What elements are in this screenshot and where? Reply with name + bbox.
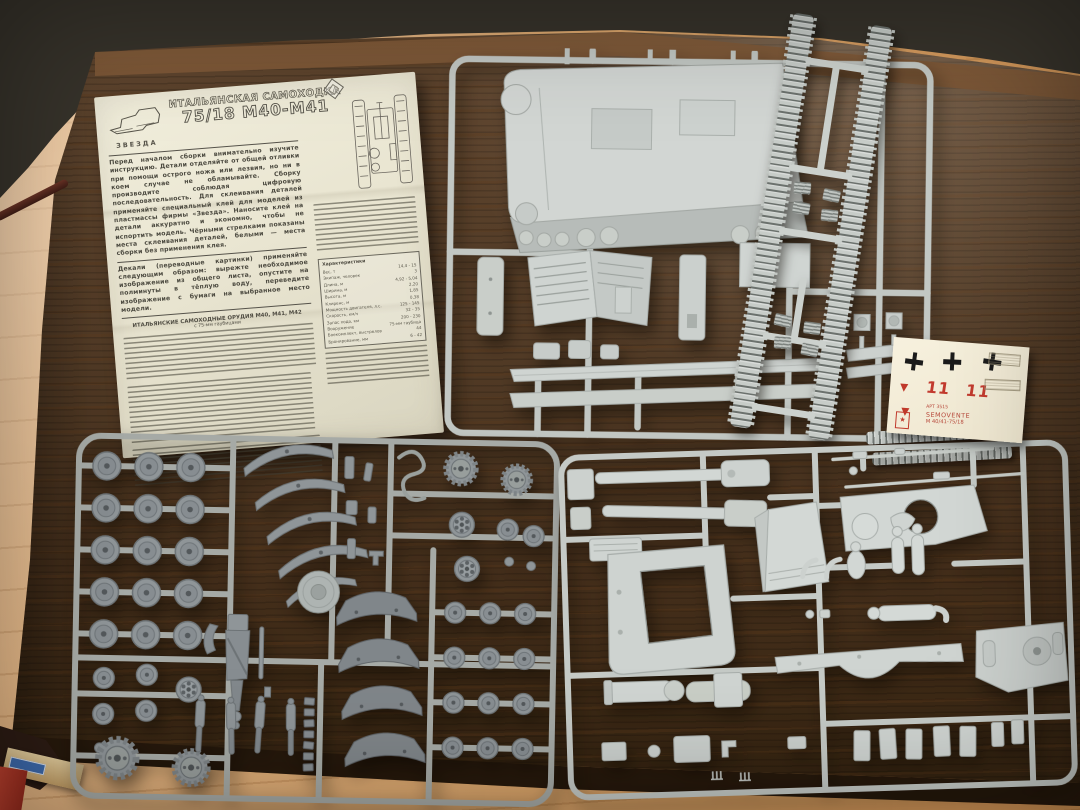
sprue-runner bbox=[816, 61, 841, 176]
decal-brand-logo: ★ bbox=[895, 411, 910, 429]
track-link-chain-parts bbox=[303, 697, 315, 771]
history-paragraph bbox=[313, 196, 419, 254]
instruction-sheet: ЗВЕЗДА ИТАЛЬЯНСКАЯ САМОХОДКА 75/18 М40-М… bbox=[94, 72, 444, 459]
decal-kit-model: M 40/41-75/18 bbox=[926, 419, 970, 427]
track-pad-part bbox=[820, 209, 838, 223]
track-pad-part bbox=[822, 188, 841, 203]
windshield-plate-part bbox=[754, 502, 829, 592]
zvezda-logo-art bbox=[105, 104, 165, 139]
printer-mark-box bbox=[984, 379, 1020, 392]
wheels-sprue bbox=[66, 425, 568, 810]
spec-table: Характеристики Вес, т14,4 - 15Экипаж, че… bbox=[318, 251, 427, 349]
gun-barrel-parts bbox=[567, 459, 772, 561]
vehicle-top-view-diagram bbox=[346, 92, 420, 195]
cross-marking-decal bbox=[904, 351, 924, 371]
rear-plate-assembly-part bbox=[974, 622, 1068, 693]
assembly-instructions-text: Перед началом сборки внимательно изучите… bbox=[109, 144, 306, 258]
track-pad-part bbox=[773, 313, 792, 328]
track-pad-part bbox=[800, 342, 819, 357]
history-paragraph bbox=[325, 345, 429, 387]
track-pad-part bbox=[803, 321, 821, 335]
triangle-marking-decal bbox=[900, 383, 909, 392]
muffler-tank-parts bbox=[604, 672, 751, 711]
trident-small-parts bbox=[711, 770, 751, 781]
kit-title: ИТАЛЬЯНСКАЯ САМОХОДКА 75/18 М40-М41 bbox=[166, 86, 344, 129]
sheet-right-column: Характеристики Вес, т14,4 - 15Экипаж, че… bbox=[313, 196, 430, 392]
sprocket-wheel-parts bbox=[444, 453, 546, 582]
spec-table-rows: Вес, т14,4 - 15Экипаж, человек3Длина, м4… bbox=[323, 262, 423, 345]
decal-sheet: 11 11 АРТ 3515 SEMOVENTE M 40/41-75/18 ★ bbox=[886, 337, 1029, 443]
paired-wheel-grid bbox=[442, 602, 536, 760]
decal-caption: АРТ 3515 SEMOVENTE M 40/41-75/18 bbox=[926, 405, 971, 427]
printer-mark-box bbox=[988, 352, 1021, 366]
drive-sprocket-parts bbox=[98, 739, 208, 784]
cross-marking-decal bbox=[943, 352, 962, 371]
number-11-decals: 11 11 bbox=[925, 378, 992, 402]
photo-model-kit-contents: ЗВЕЗДА ИТАЛЬЯНСКАЯ САМОХОДКА 75/18 М40-М… bbox=[0, 0, 1080, 810]
red-book-on-floor bbox=[0, 766, 28, 810]
hull-floor-part bbox=[775, 643, 964, 680]
shock-absorber-parts bbox=[194, 695, 297, 756]
road-wheel-grid bbox=[89, 452, 205, 650]
stowage-box-parts bbox=[853, 720, 1025, 762]
track-pad-part bbox=[793, 181, 811, 194]
sprue-crossbar bbox=[751, 403, 815, 420]
superstructure-part bbox=[606, 545, 736, 675]
helmet-dome-part bbox=[852, 513, 879, 540]
small-hull-fittings bbox=[602, 732, 807, 764]
turntable-hub bbox=[311, 584, 326, 599]
sprue-crossbar bbox=[779, 227, 843, 244]
detail-sprue bbox=[552, 428, 1080, 810]
track-pad-part bbox=[774, 336, 792, 349]
bogie-mount-parts bbox=[332, 588, 428, 768]
track-pad-part bbox=[792, 201, 811, 216]
zvezda-logo: ЗВЕЗДА bbox=[104, 104, 167, 151]
